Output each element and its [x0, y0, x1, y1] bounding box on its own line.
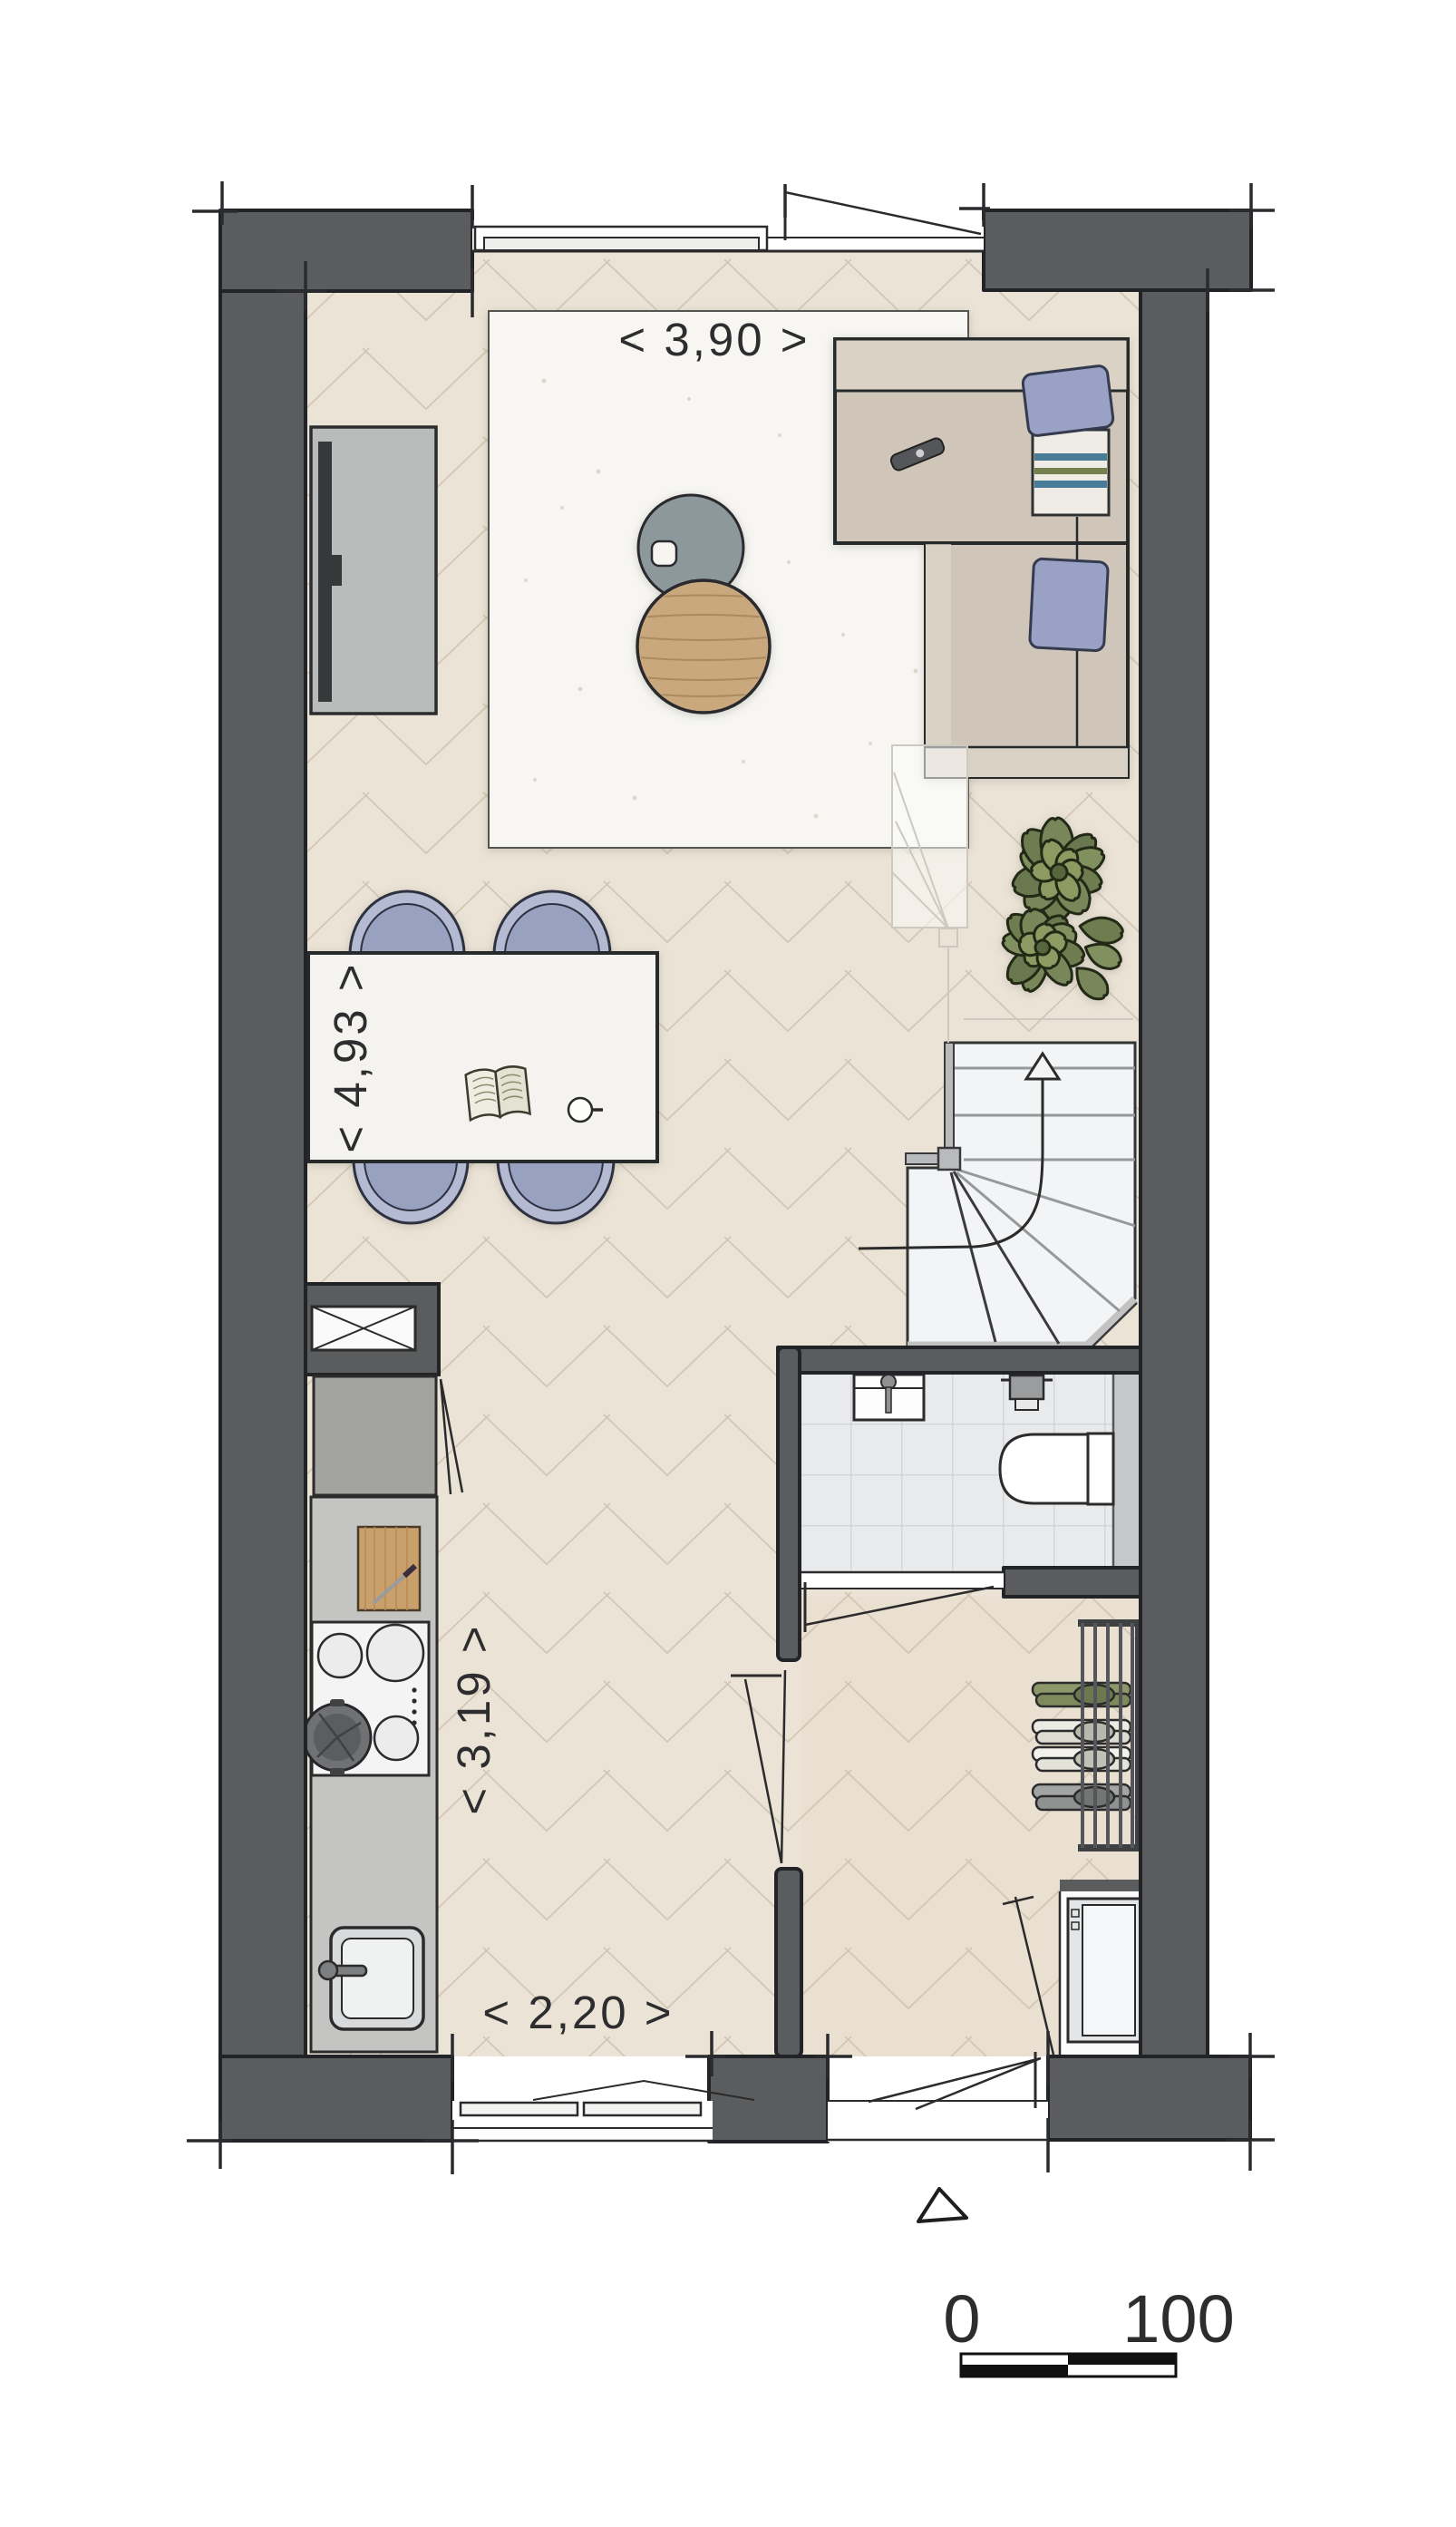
- svg-text:100: 100: [1122, 2281, 1234, 2357]
- svg-text:0: 0: [943, 2281, 980, 2357]
- svg-text:< 3,90 >: < 3,90 >: [618, 314, 810, 365]
- svg-text:< 3,19 >: < 3,19 >: [448, 1623, 500, 1814]
- svg-text:< 2,20 >: < 2,20 >: [482, 1987, 674, 2038]
- svg-text:< 4,93 >: < 4,93 >: [325, 961, 376, 1152]
